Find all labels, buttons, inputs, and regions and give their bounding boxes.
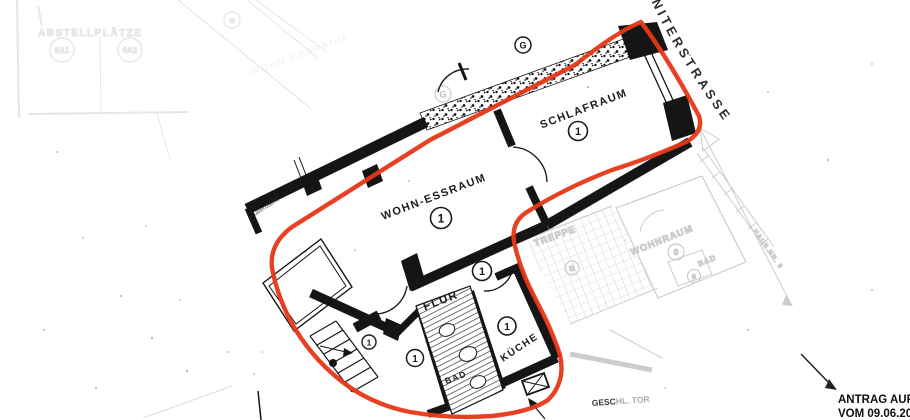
gate-label-bold: GESC (591, 396, 616, 408)
ghost-spot2-label: 6A2 (123, 46, 138, 55)
neighbor-bad-number: 9 (692, 272, 696, 281)
neighbor-g-marker: G (569, 264, 575, 273)
unit-marker-kueche: 1 (504, 321, 510, 333)
unit-marker-small-2: 1 (412, 354, 418, 365)
ghost-spot1-label: 6A1 (55, 46, 70, 55)
g-marker-dark: G (519, 41, 526, 51)
footer-line1: ANTRAG AUF A (838, 394, 910, 406)
ghost-g-label: G (229, 18, 235, 25)
g-marker-faint: G (439, 90, 446, 100)
neighbor-wohnraum-number: 9 (674, 247, 679, 257)
floorplan-drawing: ABSTELLPLÄTZE 6A1 6A2 G WOHN-ESSRAUM TRE… (0, 0, 910, 420)
ghost-abstellplaetze-label: ABSTELLPLÄTZE (38, 26, 143, 39)
unit-marker-wohn: 1 (438, 212, 445, 226)
footer-line2: VOM 09.06.200 (838, 408, 910, 420)
unit-marker-schlafraum: 1 (575, 126, 581, 138)
floorplan-page: ABSTELLPLÄTZE 6A1 6A2 G WOHN-ESSRAUM TRE… (0, 0, 910, 420)
unit-marker-flur: 1 (479, 266, 485, 278)
unit-marker-small-1: 1 (367, 338, 372, 348)
